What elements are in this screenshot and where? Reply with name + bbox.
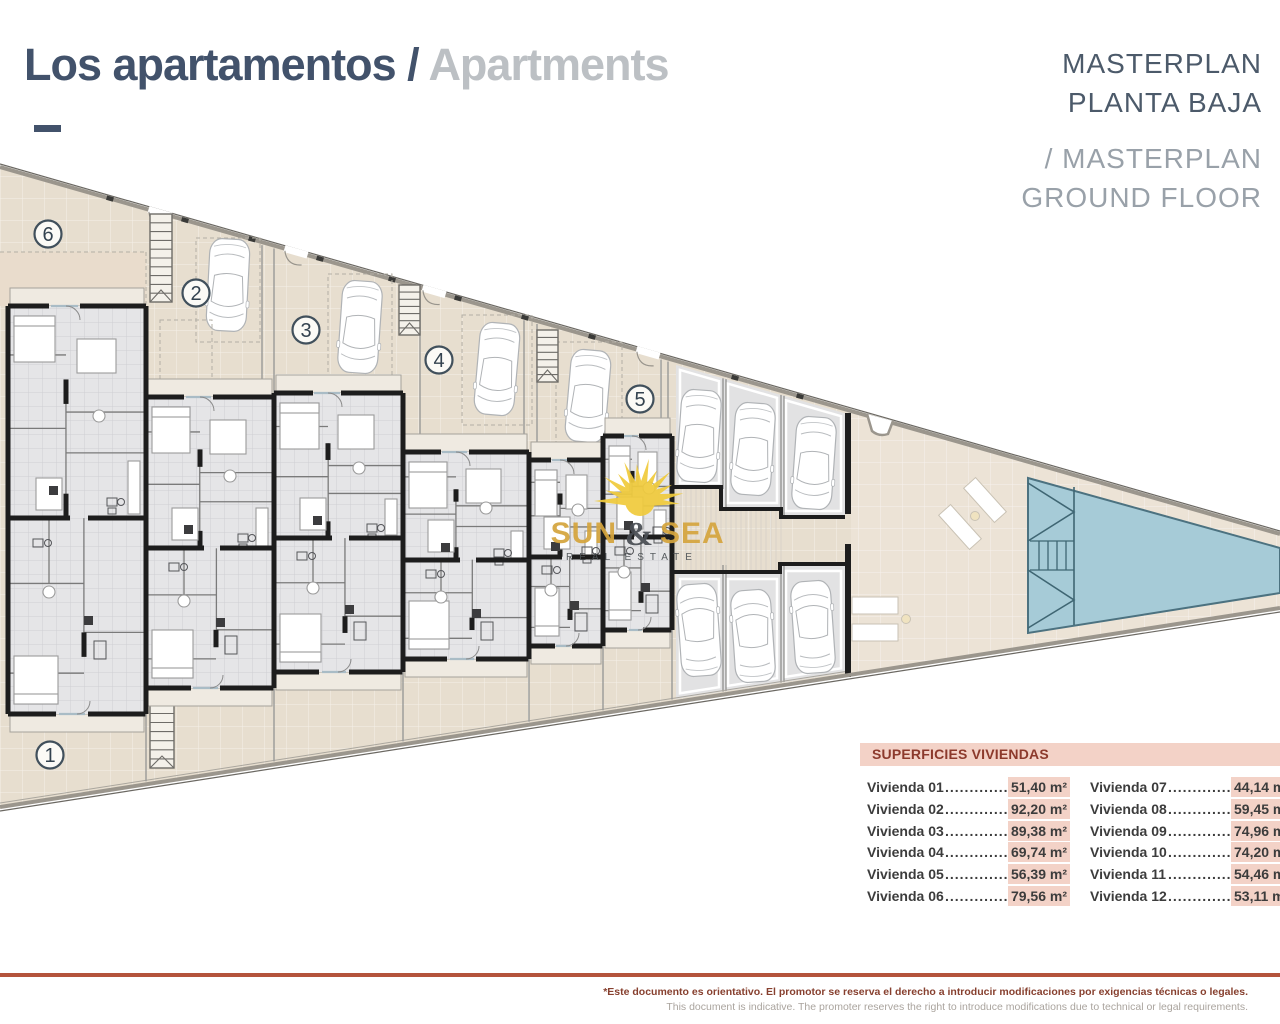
svg-text:3: 3 [300, 320, 311, 342]
svg-text:1: 1 [44, 745, 55, 767]
svg-text:4: 4 [433, 350, 444, 372]
svg-text:SUN: SUN [551, 517, 617, 550]
svg-text:SEA: SEA [660, 517, 725, 550]
svg-text:5: 5 [634, 389, 645, 411]
svg-text:REAL ESTATE: REAL ESTATE [566, 552, 698, 563]
svg-text:2: 2 [190, 283, 201, 305]
svg-text:6: 6 [42, 224, 53, 246]
svg-text:&: & [625, 516, 653, 553]
